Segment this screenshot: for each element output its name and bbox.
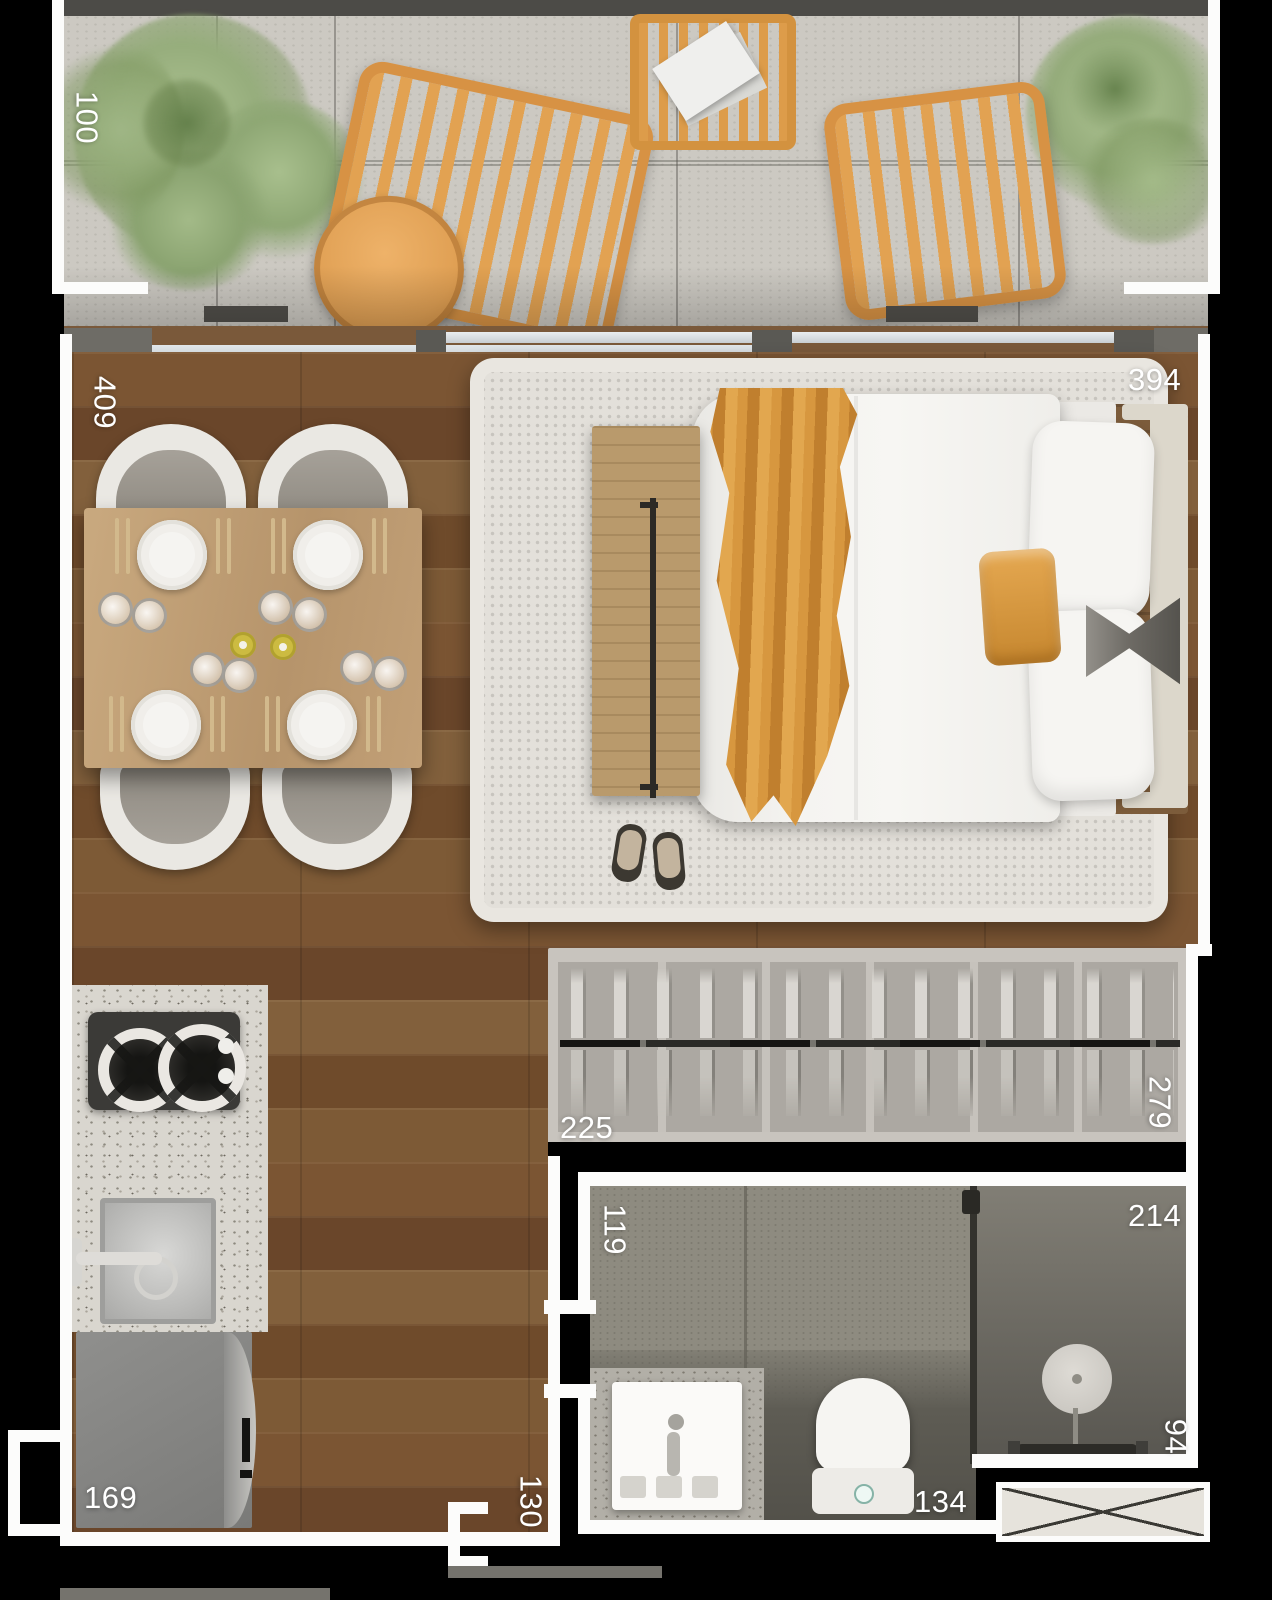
glass [190, 652, 225, 687]
slipper [652, 831, 687, 891]
cutlery [372, 518, 376, 574]
cooktop-knob [218, 1068, 234, 1084]
dim-bedroom: 394 [1128, 364, 1181, 395]
plant-right-core [1070, 44, 1160, 134]
entrance-door-jamb [448, 1502, 460, 1568]
cutlery [227, 518, 231, 574]
wall [1208, 0, 1220, 294]
duct-shaft [996, 1482, 1210, 1542]
cooktop-knob [218, 1038, 234, 1054]
cutlery [126, 518, 130, 574]
wall [578, 1396, 590, 1534]
wall [1186, 948, 1198, 1178]
shaft-x-mark [1002, 1488, 1204, 1536]
wall [52, 282, 148, 294]
wall [578, 1520, 1010, 1534]
fridge-handle [242, 1418, 250, 1462]
wall [1124, 282, 1220, 294]
plate [131, 690, 201, 760]
sink-control [620, 1476, 646, 1498]
dim-closet-depth: 279 [1145, 1068, 1176, 1138]
plant-left-core [142, 78, 232, 168]
plate [137, 520, 207, 590]
cutlery [276, 696, 280, 752]
closet-rail [560, 1040, 1180, 1047]
wall [60, 1532, 560, 1546]
cutlery [282, 518, 286, 574]
shower-glass-partition [970, 1186, 977, 1464]
exterior-edge [448, 1566, 662, 1578]
dim-toilet-zone: 134 [914, 1486, 967, 1517]
glass [372, 656, 407, 691]
sink-control [692, 1476, 718, 1498]
floorplan-canvas: 100 409 394 225 279 119 214 134 94 130 1… [0, 0, 1272, 1600]
dim-bathroom-entry: 119 [600, 1195, 631, 1265]
burner [158, 1024, 246, 1112]
wall [1198, 334, 1210, 954]
sink-control [656, 1476, 682, 1498]
cutlery [265, 696, 269, 752]
toilet-flush-button [854, 1484, 874, 1504]
glass [292, 597, 327, 632]
cutlery [120, 696, 124, 752]
cutlery [210, 696, 214, 752]
cutlery [377, 696, 381, 752]
cutlery [115, 518, 119, 574]
glass [340, 650, 375, 685]
toilet-lid [816, 1378, 910, 1472]
dim-hallway: 130 [516, 1467, 547, 1537]
wall [548, 1156, 560, 1534]
hanging-clothes-top [562, 968, 1174, 1038]
duvet-fold-line [854, 396, 858, 820]
side-door-jamb [8, 1430, 20, 1536]
cutlery [383, 518, 387, 574]
cutlery [271, 518, 275, 574]
shower-head-center [1072, 1374, 1082, 1384]
exterior-edge [60, 1588, 330, 1600]
dim-closet-width: 225 [560, 1112, 613, 1143]
sink-faucet [668, 1414, 684, 1430]
wall [578, 1186, 590, 1314]
sink-spout [667, 1432, 680, 1476]
faucet-pipe [76, 1252, 162, 1265]
balcony-area [64, 0, 1208, 332]
dim-balcony: 100 [72, 83, 103, 153]
hanging-clothes-bottom [562, 1050, 1174, 1116]
dim-living-room: 409 [90, 368, 121, 438]
dim-shower: 94 [1161, 1407, 1192, 1467]
cutlery [221, 696, 225, 752]
glass [98, 592, 133, 627]
wall [60, 334, 72, 1544]
plate [287, 690, 357, 760]
balcony-shadow [64, 266, 1208, 332]
handle-mount [640, 502, 658, 508]
dresser-handle [650, 498, 656, 798]
dim-bathroom-width: 214 [1128, 1200, 1181, 1231]
headboard-cap [1122, 404, 1188, 420]
cutlery [366, 696, 370, 752]
glass-handle [962, 1190, 980, 1214]
orange-accent-pillow [978, 547, 1062, 666]
cutlery [216, 518, 220, 574]
handle-mount [640, 784, 658, 790]
bathroom-door-jamb [544, 1384, 596, 1398]
glass [132, 598, 167, 633]
glass [258, 590, 293, 625]
glass [222, 658, 257, 693]
cutlery [109, 696, 113, 752]
plant-right-cluster [1078, 118, 1208, 244]
bathroom-door-jamb [544, 1300, 596, 1314]
candle [230, 632, 256, 658]
sideboard-dresser [592, 426, 700, 796]
dim-kitchen: 169 [84, 1482, 137, 1513]
fridge-handle [240, 1470, 252, 1478]
plate [293, 520, 363, 590]
wall [52, 0, 64, 294]
candle [270, 634, 296, 660]
wall [578, 1172, 1198, 1186]
